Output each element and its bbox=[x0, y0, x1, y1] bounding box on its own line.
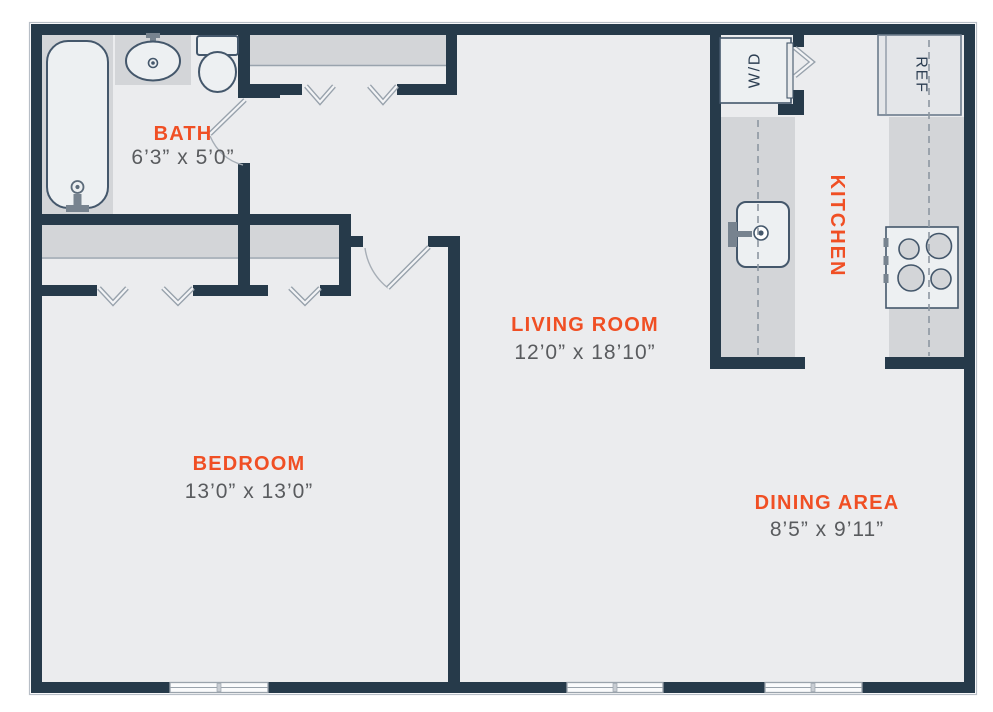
bath-label: BATH bbox=[154, 123, 213, 145]
wall-bedroom-top-seg3 bbox=[320, 285, 351, 296]
bath-dims: 6’3” x 5’0” bbox=[131, 146, 234, 169]
washer-dryer-icon: W/D bbox=[720, 38, 793, 103]
wall-bedroom-entry-stub bbox=[351, 236, 363, 247]
wall-bath-right-lower bbox=[238, 163, 250, 296]
living-room-dims: 12’0” x 18’10” bbox=[514, 341, 655, 364]
living-room-label: LIVING ROOM bbox=[511, 314, 659, 336]
bedroom-closet-a-shelf bbox=[42, 225, 238, 257]
bedroom-closet-b-shelf bbox=[250, 225, 339, 257]
wall-exterior-left bbox=[31, 24, 42, 693]
stove-icon bbox=[884, 227, 959, 308]
wall-bath-right-upper bbox=[238, 35, 250, 98]
window-living bbox=[567, 683, 663, 693]
wall-hall-horizontal bbox=[31, 214, 351, 225]
wall-wd-bottom-stub-h bbox=[778, 104, 804, 115]
wall-exterior-top bbox=[31, 24, 975, 35]
washer-dryer-label: W/D bbox=[747, 52, 764, 89]
refrigerator-label: REF bbox=[912, 56, 929, 93]
window-dining bbox=[765, 683, 862, 693]
wall-closet-b-right bbox=[339, 214, 351, 296]
wall-bedroom-top-seg2 bbox=[193, 285, 268, 296]
wall-kitchen-right-cap bbox=[885, 357, 975, 369]
bathtub-icon bbox=[47, 41, 108, 212]
bedroom-label: BEDROOM bbox=[193, 453, 306, 475]
dining-area-label: DINING AREA bbox=[755, 492, 900, 514]
window-bedroom bbox=[170, 683, 268, 693]
wall-kitchen-left-cap bbox=[710, 357, 805, 369]
wall-hall-closet-bottom-right bbox=[397, 84, 457, 95]
wall-hall-closet-bottom-left bbox=[250, 84, 302, 95]
refrigerator-icon: REF bbox=[878, 35, 961, 115]
dining-area-dims: 8’5” x 9’11” bbox=[770, 518, 884, 541]
floor-plan-drawing: W/D REF bbox=[0, 0, 993, 712]
kitchen-label: KITCHEN bbox=[826, 175, 848, 278]
toilet-icon bbox=[197, 36, 238, 92]
floor-plan: W/D REF bbox=[0, 0, 993, 712]
wall-wd-top-stub bbox=[793, 35, 804, 47]
bedroom-dims: 13’0” x 13’0” bbox=[185, 480, 314, 503]
wall-bedroom-living bbox=[448, 236, 460, 682]
hall-closet-shelf bbox=[250, 35, 446, 65]
wall-bedroom-top-seg1 bbox=[31, 285, 97, 296]
